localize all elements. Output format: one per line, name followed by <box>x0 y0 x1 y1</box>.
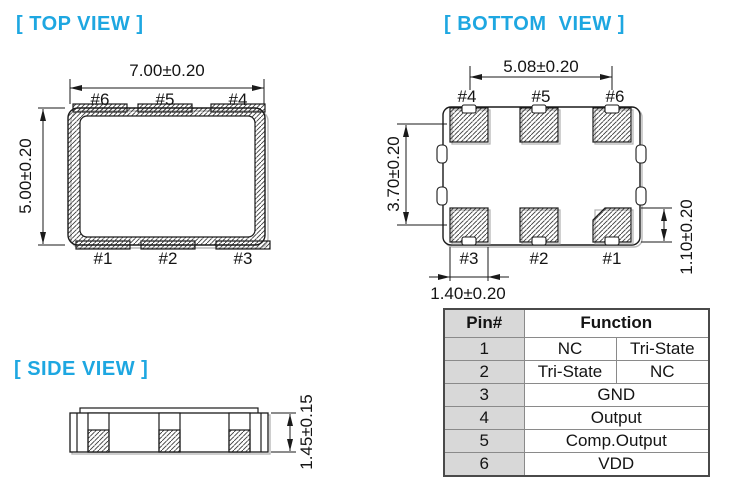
bottom-view-pad-height-dimension <box>641 208 672 242</box>
pin-number-cell: 5 <box>444 430 524 453</box>
bottom-view-pin-4-label: #4 <box>450 87 484 107</box>
pin-function-table: Pin# Function 1 NC Tri-State 2 Tri-State… <box>443 308 710 477</box>
top-view-pin-4-label: #4 <box>221 90 255 110</box>
pin-number-cell: 1 <box>444 338 524 361</box>
table-row: 3 GND <box>444 384 709 407</box>
bottom-view-pad-width-label: 1.40±0.20 <box>413 284 523 304</box>
table-row: 6 VDD <box>444 453 709 477</box>
function-cell: VDD <box>524 453 709 477</box>
bottom-view-pin-3-label: #3 <box>452 249 486 269</box>
top-view-pin-5-label: #5 <box>148 90 182 110</box>
bottom-view-row-pitch-label: 3.70±0.20 <box>384 119 404 229</box>
bottom-view-pin-2-label: #2 <box>522 249 556 269</box>
bottom-view-pin-1-label: #1 <box>595 249 629 269</box>
bottom-view-title: [ BOTTOM VIEW ] <box>444 13 625 36</box>
table-row: 1 NC Tri-State <box>444 338 709 361</box>
table-header-function: Function <box>524 309 709 338</box>
table-row: 5 Comp.Output <box>444 430 709 453</box>
function-cell: NC <box>524 338 616 361</box>
table-header-pin: Pin# <box>444 309 524 338</box>
pin-number-cell: 3 <box>444 384 524 407</box>
table-row: 2 Tri-State NC <box>444 361 709 384</box>
side-view-drawing <box>70 408 296 454</box>
top-view-height-dim-label: 5.00±0.20 <box>16 121 36 231</box>
table-row: 4 Output <box>444 407 709 430</box>
function-cell: Comp.Output <box>524 430 709 453</box>
bottom-view-pin-5-label: #5 <box>524 87 558 107</box>
side-view-thickness-dimension <box>271 413 296 452</box>
side-view-title: [ SIDE VIEW ] <box>14 358 148 381</box>
top-view-height-dimension <box>38 108 65 245</box>
pin-number-cell: 6 <box>444 453 524 477</box>
top-view-pin-1-label: #1 <box>86 249 120 269</box>
top-view-pin-3-label: #3 <box>226 249 260 269</box>
pin-number-cell: 2 <box>444 361 524 384</box>
top-view-title: [ TOP VIEW ] <box>16 13 144 36</box>
bottom-view-row-pitch-dimension <box>397 124 447 225</box>
function-cell: Output <box>524 407 709 430</box>
top-view-pin-6-label: #6 <box>83 90 117 110</box>
function-cell: Tri-State <box>524 361 616 384</box>
table-header-row: Pin# Function <box>444 309 709 338</box>
bottom-view-pad-height-label: 1.10±0.20 <box>677 182 697 292</box>
function-cell: NC <box>616 361 709 384</box>
bottom-view-pin-6-label: #6 <box>598 87 632 107</box>
pin-number-cell: 4 <box>444 407 524 430</box>
top-view-package-lid <box>80 116 255 237</box>
bottom-view-pad-span-label: 5.08±0.20 <box>486 57 596 77</box>
top-view-pin-2-label: #2 <box>151 249 185 269</box>
function-cell: GND <box>524 384 709 407</box>
function-cell: Tri-State <box>616 338 709 361</box>
top-view-width-dim-label: 7.00±0.20 <box>112 61 222 81</box>
side-view-thickness-label: 1.45±0.15 <box>297 377 317 487</box>
